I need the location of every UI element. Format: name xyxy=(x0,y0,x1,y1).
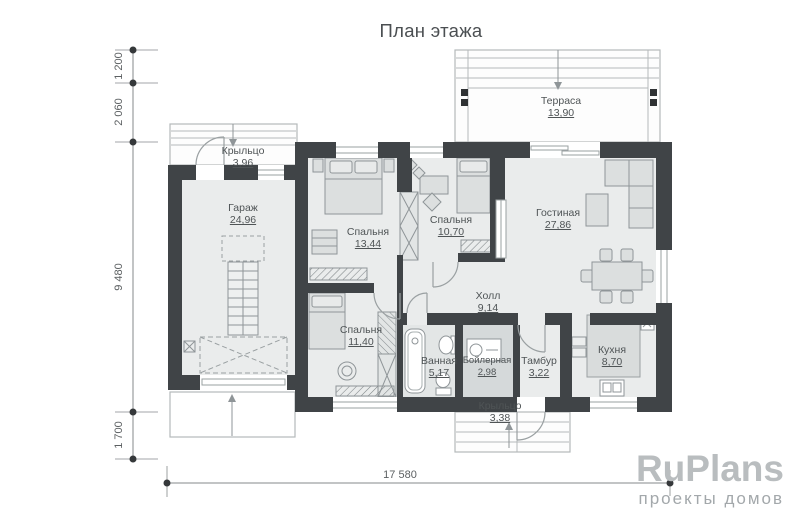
room-label-tambour: Тамбур 3,22 xyxy=(521,355,557,379)
room-label-kitchen: Кухня 8,70 xyxy=(598,344,626,368)
dimension-left-main: 9 480 xyxy=(113,263,125,291)
room-label-bedroom2: Спальня 10,70 xyxy=(430,214,472,238)
room-label-hall: Холл 9,14 xyxy=(476,290,501,314)
room-label-bedroom3: Спальня 11,40 xyxy=(340,324,382,348)
dimension-bottom-total: 17 580 xyxy=(383,469,417,481)
logo-tagline: проекты домов xyxy=(636,490,784,507)
room-label-boiler: Бойлерная 2,98 xyxy=(463,355,512,379)
garage-apron xyxy=(170,392,295,437)
page-title: План этажа xyxy=(380,20,483,42)
room-label-bathroom: Ванная 5,17 xyxy=(421,355,457,379)
dimension-left-bottom: 1 700 xyxy=(113,421,125,449)
ruplans-logo: RuPlans проекты домов xyxy=(636,450,784,507)
room-label-garage: Гараж 24,96 xyxy=(228,202,258,226)
room-label-porch-bottom: Крыльцо 3,38 xyxy=(479,400,522,424)
room-label-bedroom1: Спальня 13,44 xyxy=(347,226,389,250)
dimension-left-upper: 2 060 xyxy=(113,98,125,126)
logo-brand: RuPlans xyxy=(636,450,784,487)
floor-plan-page: План этажа Крыльцо 3,96 Гараж 24,96 Спал… xyxy=(0,0,804,519)
dimension-left-top: 1 200 xyxy=(113,52,125,80)
room-label-terrace: Терраса 13,90 xyxy=(541,95,581,119)
room-label-living: Гостиная 27,86 xyxy=(536,207,580,231)
room-label-porch-top: Крыльцо 3,96 xyxy=(222,145,265,169)
